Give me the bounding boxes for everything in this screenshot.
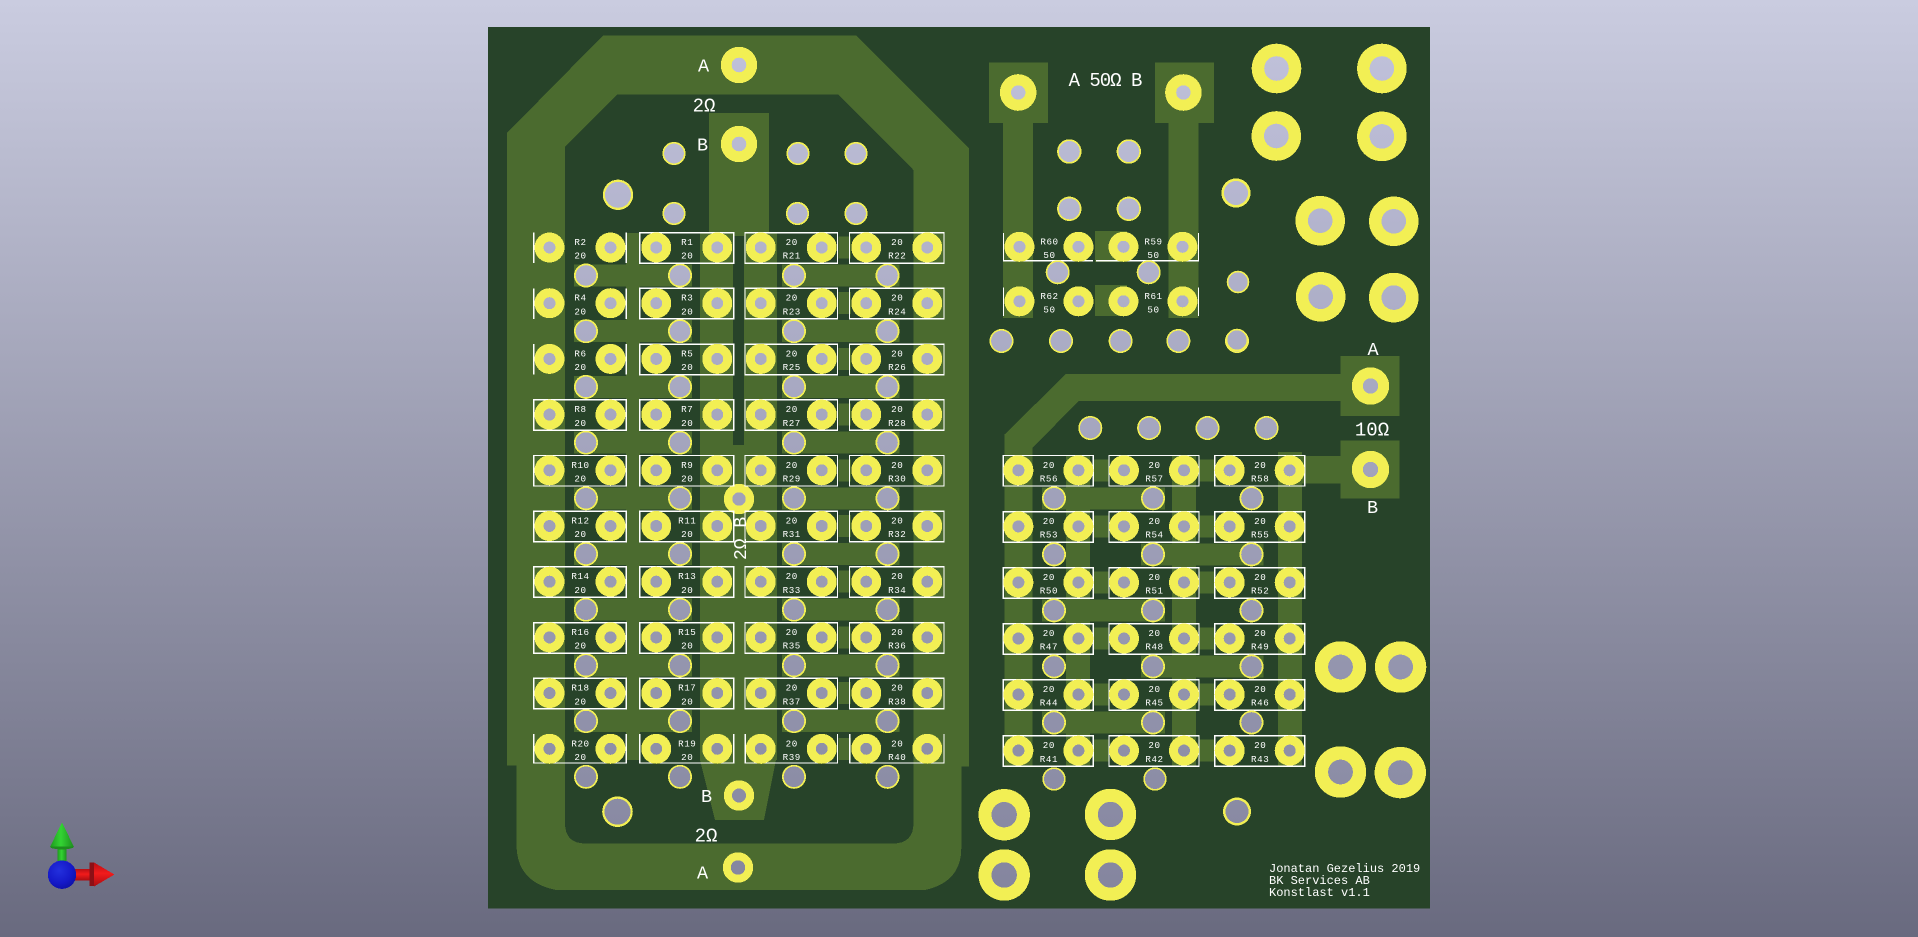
svg-text:20: 20 xyxy=(891,571,903,582)
svg-text:50: 50 xyxy=(1147,305,1159,316)
svg-text:R60: R60 xyxy=(1040,236,1058,247)
svg-text:20: 20 xyxy=(1043,740,1055,751)
svg-text:R2: R2 xyxy=(574,237,586,248)
svg-text:R10: R10 xyxy=(571,460,589,471)
svg-text:R29: R29 xyxy=(783,474,801,485)
svg-text:20: 20 xyxy=(1043,572,1055,583)
svg-text:20: 20 xyxy=(891,237,903,248)
svg-text:20: 20 xyxy=(681,418,693,429)
svg-text:R38: R38 xyxy=(888,696,906,707)
svg-text:R62: R62 xyxy=(1040,291,1058,302)
svg-text:R3: R3 xyxy=(681,293,693,304)
svg-text:20: 20 xyxy=(574,529,586,540)
svg-text:20: 20 xyxy=(1043,460,1055,471)
svg-text:R34: R34 xyxy=(888,585,906,596)
svg-text:R50: R50 xyxy=(1040,586,1058,597)
svg-text:R46: R46 xyxy=(1251,698,1269,709)
svg-text:20: 20 xyxy=(786,627,798,638)
svg-text:R18: R18 xyxy=(571,683,589,694)
svg-text:R57: R57 xyxy=(1145,474,1163,485)
svg-text:R49: R49 xyxy=(1251,642,1269,653)
svg-text:A: A xyxy=(697,864,709,885)
svg-text:20: 20 xyxy=(786,516,798,527)
svg-text:20: 20 xyxy=(1148,628,1160,639)
svg-text:R37: R37 xyxy=(783,696,801,707)
svg-text:R22: R22 xyxy=(888,251,906,262)
svg-text:R9: R9 xyxy=(681,460,693,471)
svg-text:R33: R33 xyxy=(783,585,801,596)
svg-text:20: 20 xyxy=(681,529,693,540)
svg-text:R21: R21 xyxy=(783,251,801,262)
svg-text:R4: R4 xyxy=(574,293,586,304)
svg-text:R12: R12 xyxy=(571,516,589,527)
svg-text:10Ω: 10Ω xyxy=(1355,420,1389,442)
svg-text:R47: R47 xyxy=(1040,642,1058,653)
svg-text:R15: R15 xyxy=(678,627,696,638)
svg-text:20: 20 xyxy=(574,474,586,485)
svg-text:20: 20 xyxy=(1043,628,1055,639)
svg-text:20: 20 xyxy=(786,683,798,694)
svg-text:R61: R61 xyxy=(1144,291,1162,302)
svg-text:R52: R52 xyxy=(1251,586,1269,597)
svg-text:20: 20 xyxy=(574,752,586,763)
svg-text:20: 20 xyxy=(574,418,586,429)
svg-text:R54: R54 xyxy=(1145,530,1163,541)
svg-text:20: 20 xyxy=(1254,684,1266,695)
svg-text:R51: R51 xyxy=(1145,586,1163,597)
svg-text:R31: R31 xyxy=(783,529,801,540)
svg-text:R43: R43 xyxy=(1251,754,1269,765)
svg-text:2Ω: 2Ω xyxy=(693,96,716,118)
svg-text:R23: R23 xyxy=(783,306,801,317)
svg-text:20: 20 xyxy=(574,306,586,317)
svg-text:20: 20 xyxy=(574,362,586,373)
svg-text:20: 20 xyxy=(681,585,693,596)
svg-text:20: 20 xyxy=(786,348,798,359)
svg-text:20: 20 xyxy=(574,251,586,262)
svg-text:20: 20 xyxy=(891,460,903,471)
svg-text:R41: R41 xyxy=(1040,754,1058,765)
svg-text:20: 20 xyxy=(681,306,693,317)
svg-text:R36: R36 xyxy=(888,641,906,652)
svg-text:R44: R44 xyxy=(1040,698,1058,709)
svg-text:R1: R1 xyxy=(681,237,693,248)
svg-text:20: 20 xyxy=(891,627,903,638)
svg-text:20: 20 xyxy=(681,752,693,763)
svg-text:50: 50 xyxy=(1043,305,1055,316)
svg-text:20: 20 xyxy=(1254,516,1266,527)
svg-text:R58: R58 xyxy=(1251,474,1269,485)
svg-text:20: 20 xyxy=(1043,516,1055,527)
svg-text:20: 20 xyxy=(1254,572,1266,583)
svg-text:R30: R30 xyxy=(888,474,906,485)
svg-text:R28: R28 xyxy=(888,418,906,429)
svg-text:20: 20 xyxy=(574,585,586,596)
svg-text:R24: R24 xyxy=(888,306,906,317)
svg-text:R27: R27 xyxy=(783,418,801,429)
svg-text:20: 20 xyxy=(891,404,903,415)
svg-text:R5: R5 xyxy=(681,348,693,359)
svg-text:20: 20 xyxy=(1148,516,1160,527)
svg-text:20: 20 xyxy=(786,460,798,471)
svg-text:R26: R26 xyxy=(888,362,906,373)
svg-text:R40: R40 xyxy=(888,752,906,763)
svg-text:R56: R56 xyxy=(1040,474,1058,485)
svg-text:R8: R8 xyxy=(574,404,586,415)
svg-text:20: 20 xyxy=(786,293,798,304)
svg-text:R53: R53 xyxy=(1040,530,1058,541)
svg-text:R11: R11 xyxy=(678,516,696,527)
svg-text:R16: R16 xyxy=(571,627,589,638)
svg-text:20: 20 xyxy=(786,404,798,415)
svg-text:R20: R20 xyxy=(571,738,589,749)
svg-text:20: 20 xyxy=(786,738,798,749)
svg-text:B: B xyxy=(701,787,712,808)
svg-text:20: 20 xyxy=(1043,684,1055,695)
svg-text:R42: R42 xyxy=(1145,754,1163,765)
svg-text:20: 20 xyxy=(891,516,903,527)
svg-text:R7: R7 xyxy=(681,404,693,415)
svg-text:20: 20 xyxy=(786,237,798,248)
svg-text:20: 20 xyxy=(891,683,903,694)
svg-text:A 50Ω B: A 50Ω B xyxy=(1069,70,1142,92)
svg-text:R45: R45 xyxy=(1145,698,1163,709)
svg-text:R19: R19 xyxy=(678,738,696,749)
svg-text:B: B xyxy=(1367,498,1378,519)
svg-text:20: 20 xyxy=(681,696,693,707)
svg-text:R59: R59 xyxy=(1144,236,1162,247)
svg-text:R35: R35 xyxy=(783,641,801,652)
svg-text:R55: R55 xyxy=(1251,530,1269,541)
svg-text:R17: R17 xyxy=(678,683,696,694)
svg-text:A: A xyxy=(1367,340,1379,361)
svg-text:20: 20 xyxy=(681,474,693,485)
svg-text:R39: R39 xyxy=(783,752,801,763)
svg-text:20: 20 xyxy=(1148,460,1160,471)
svg-text:R14: R14 xyxy=(571,571,589,582)
svg-text:2Ω: 2Ω xyxy=(695,826,718,848)
svg-text:R32: R32 xyxy=(888,529,906,540)
svg-text:A: A xyxy=(698,57,710,78)
svg-text:20: 20 xyxy=(891,293,903,304)
svg-text:R48: R48 xyxy=(1145,642,1163,653)
svg-text:50: 50 xyxy=(1043,250,1055,261)
svg-text:20: 20 xyxy=(891,738,903,749)
svg-text:20: 20 xyxy=(786,571,798,582)
svg-text:R25: R25 xyxy=(783,362,801,373)
svg-text:Konstlast v1.1: Konstlast v1.1 xyxy=(1269,886,1370,900)
svg-text:20: 20 xyxy=(1254,740,1266,751)
svg-text:20: 20 xyxy=(1254,628,1266,639)
svg-text:20: 20 xyxy=(574,696,586,707)
svg-text:20: 20 xyxy=(1148,740,1160,751)
svg-text:20: 20 xyxy=(1254,460,1266,471)
svg-text:20: 20 xyxy=(681,641,693,652)
svg-text:20: 20 xyxy=(1148,684,1160,695)
svg-text:B: B xyxy=(697,135,708,156)
svg-text:20: 20 xyxy=(891,348,903,359)
svg-text:50: 50 xyxy=(1147,250,1159,261)
svg-text:R13: R13 xyxy=(678,571,696,582)
svg-text:R6: R6 xyxy=(574,348,586,359)
svg-text:20: 20 xyxy=(574,641,586,652)
svg-text:20: 20 xyxy=(1148,572,1160,583)
svg-text:20: 20 xyxy=(681,251,693,262)
svg-text:20: 20 xyxy=(681,362,693,373)
